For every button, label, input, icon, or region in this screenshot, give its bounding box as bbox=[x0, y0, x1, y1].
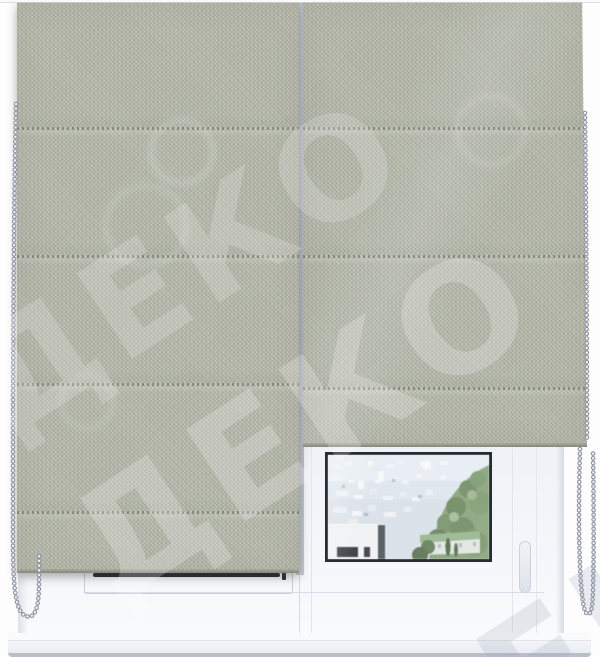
top-edge-strip bbox=[0, 0, 600, 2]
left-blind-panel bbox=[17, 2, 299, 573]
blind-hem bbox=[17, 569, 299, 573]
fold-seam bbox=[17, 255, 299, 258]
white-building bbox=[328, 519, 385, 559]
green-roof-building bbox=[412, 531, 480, 559]
sill-front-face bbox=[8, 641, 591, 653]
window-sill bbox=[8, 633, 591, 657]
vent-slit-latch bbox=[282, 572, 286, 580]
fold-seam bbox=[303, 255, 587, 258]
city-buildings bbox=[332, 460, 458, 517]
fold-seam bbox=[17, 511, 299, 514]
handle-column-line bbox=[512, 438, 513, 634]
window-handle bbox=[519, 541, 531, 593]
fabric-ornament bbox=[453, 92, 529, 168]
blind-hem bbox=[303, 443, 587, 447]
hillside-trees bbox=[428, 465, 489, 559]
city-view-image bbox=[328, 455, 489, 559]
fold-seam bbox=[303, 127, 587, 130]
city-haze bbox=[328, 455, 489, 559]
right-blind-panel bbox=[303, 2, 587, 447]
fabric-sheen bbox=[303, 2, 587, 447]
fold-seam bbox=[17, 127, 299, 130]
glass-haze-overlay bbox=[328, 455, 489, 559]
frame-right-edge bbox=[556, 438, 564, 634]
fold-seam bbox=[17, 383, 299, 386]
vent-slit bbox=[93, 573, 280, 577]
fabric-ornament bbox=[57, 372, 117, 432]
fold-seam bbox=[303, 387, 587, 390]
handle-column-line-2 bbox=[536, 438, 537, 634]
sill-bottom-edge bbox=[8, 653, 591, 657]
window-glass bbox=[325, 452, 492, 562]
sash-divider-line-2 bbox=[311, 438, 312, 634]
product-photo-roman-blinds: ДЕКО ДЕКО ДЕКО bbox=[0, 0, 600, 657]
sill-top-lip bbox=[8, 633, 591, 641]
